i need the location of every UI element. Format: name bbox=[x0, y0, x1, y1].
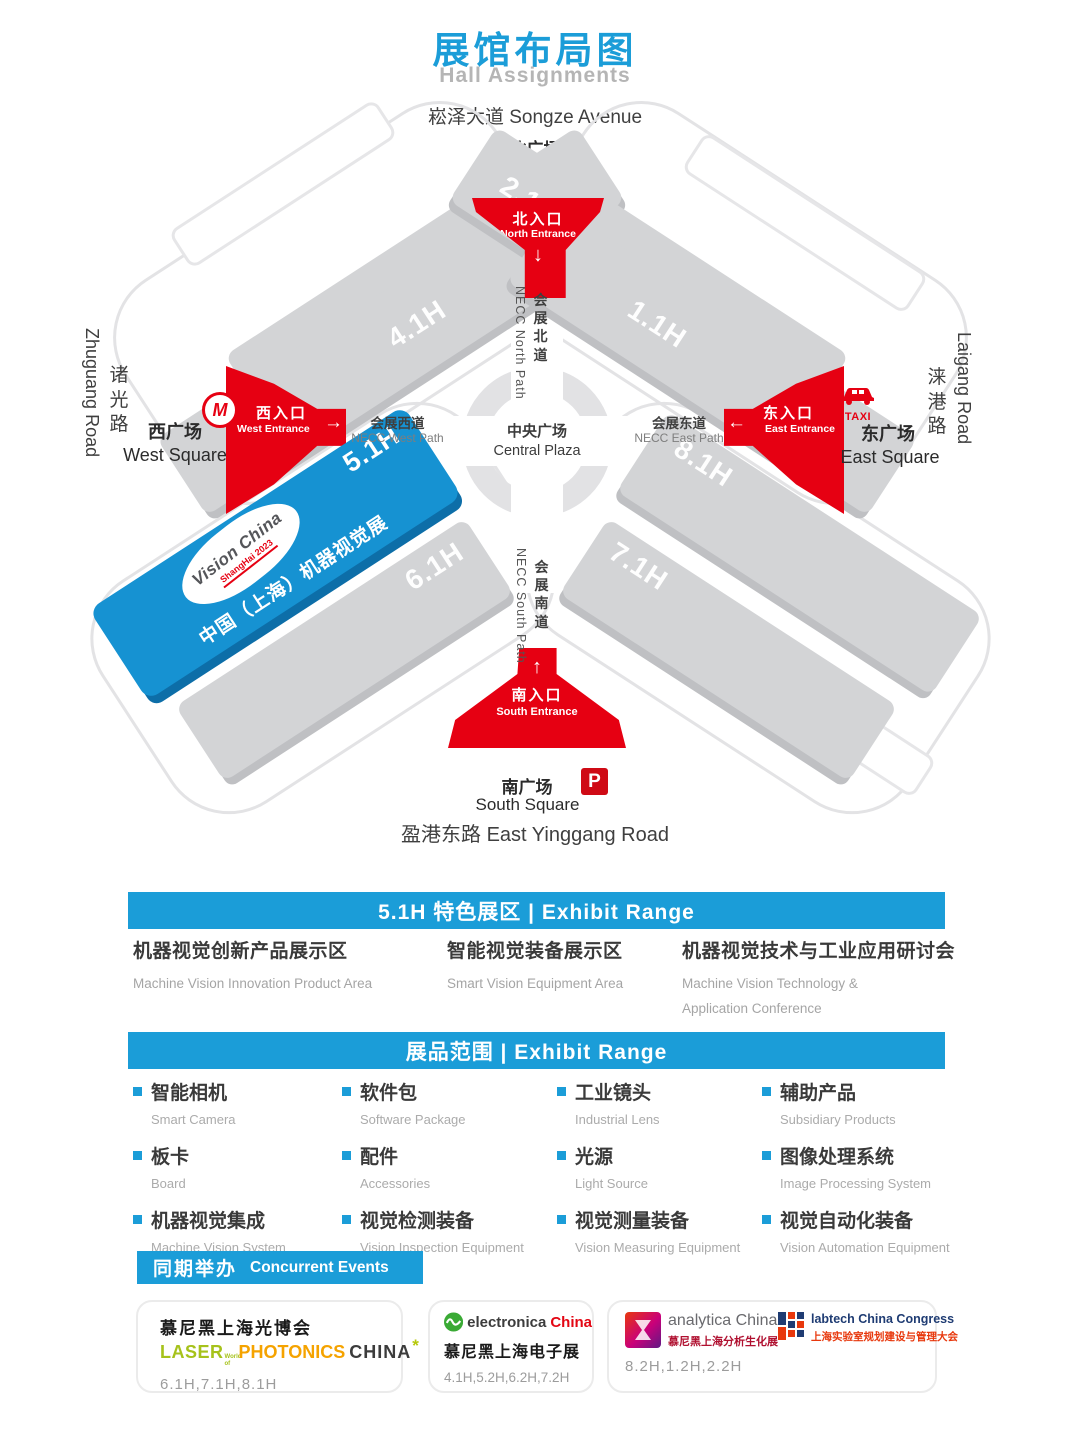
labtech-logo-block: labtech China Congress 上海实验室规划建设与管理大会 bbox=[778, 1312, 958, 1344]
necc-south-path-label-en: NECC South Path bbox=[514, 548, 528, 664]
concurrent-header-en: Concurrent Events bbox=[250, 1259, 389, 1277]
event-title-cn: 慕尼黑上海电子展 bbox=[444, 1338, 592, 1362]
featured-zone-header: 5.1H 特色展区 | Exhibit Range bbox=[128, 892, 945, 929]
event-card-laser-photonics: 慕尼黑上海光博会 LASER World of PHOTONICS CHINA … bbox=[136, 1300, 403, 1393]
bullet-icon bbox=[557, 1087, 566, 1096]
featured-item-cn: 智能视觉装备展示区 bbox=[447, 936, 672, 963]
concurrent-header-cn: 同期举办 bbox=[153, 1254, 237, 1281]
analytica-logo-block: analytica China 慕尼黑上海分析生化展 bbox=[625, 1312, 778, 1349]
necc-east-path-label-cn: 会展东道 bbox=[620, 412, 738, 432]
exhibit-item: 视觉自动化装备Vision Automation Equipment bbox=[762, 1206, 950, 1255]
exhibit-item: 机器视觉集成Machine Vision System bbox=[133, 1206, 342, 1255]
sparkle-icon: * bbox=[412, 1336, 419, 1356]
featured-item-en: Machine Vision Technology & Application … bbox=[682, 972, 882, 1022]
event-halls: 8.2H,1.2H,2.2H bbox=[625, 1358, 923, 1375]
hall-assignments-page: 展馆布局图 Hall Assignments 崧泽大道 Songze Avenu… bbox=[0, 0, 1070, 1436]
electronica-logo-icon bbox=[444, 1312, 463, 1332]
central-plaza-label-cn: 中央广场 bbox=[462, 420, 612, 441]
exhibit-range-header: 展品范围 | Exhibit Range bbox=[128, 1032, 945, 1069]
featured-zone-item: 机器视觉技术与工业应用研讨会 Machine Vision Technology… bbox=[682, 936, 882, 1022]
featured-item-cn: 机器视觉技术与工业应用研讨会 bbox=[682, 936, 882, 963]
east-square-label-en: East Square bbox=[815, 447, 965, 468]
exhibit-item: 光源Light Source bbox=[557, 1142, 762, 1191]
necc-north-path-label-cn: 会展北道 bbox=[532, 291, 549, 364]
road-label-songze-avenue: 崧泽大道 Songze Avenue bbox=[0, 102, 1070, 129]
bullet-icon bbox=[762, 1087, 771, 1096]
bullet-icon bbox=[342, 1215, 351, 1224]
necc-north-path-label-en: NECC North Path bbox=[513, 286, 527, 400]
bullet-icon bbox=[762, 1215, 771, 1224]
necc-west-path-label-cn: 会展西道 bbox=[340, 412, 455, 432]
exhibit-item: 板卡Board bbox=[133, 1142, 342, 1191]
road-label-zhuguang-cn: 诸光路 bbox=[108, 364, 130, 438]
electronica-logo: electronica China bbox=[444, 1312, 592, 1332]
concurrent-events-header: 同期举办 Concurrent Events bbox=[137, 1251, 423, 1284]
taxi-icon: TAXI bbox=[836, 385, 880, 423]
exhibit-item: 视觉检测装备Vision Inspection Equipment bbox=[342, 1206, 557, 1255]
exhibit-item: 配件Accessories bbox=[342, 1142, 557, 1191]
west-square-label-en: West Square bbox=[100, 445, 250, 466]
east-entrance-label-cn: 东入口 bbox=[763, 402, 814, 423]
road-label-laigang-cn: 涞港路 bbox=[926, 366, 948, 440]
exhibit-range-grid: 智能相机Smart Camera 软件包Software Package 工业镜… bbox=[133, 1078, 945, 1255]
featured-item-en: Smart Vision Equipment Area bbox=[447, 972, 672, 997]
east-entrance-label-en: East Entrance bbox=[765, 423, 835, 435]
necc-west-path-label-en: NECC West Path bbox=[340, 431, 455, 445]
exhibit-item: 图像处理系统Image Processing System bbox=[762, 1142, 950, 1191]
laser-photonics-logo: LASER World of PHOTONICS CHINA * bbox=[160, 1342, 401, 1367]
road-label-laigang-en: Laigang Road bbox=[953, 332, 974, 444]
event-title-cn: 慕尼黑上海光博会 bbox=[160, 1314, 401, 1339]
west-entrance-label-en: West Entrance bbox=[237, 423, 310, 435]
west-entrance-label-cn: 西入口 bbox=[256, 402, 307, 423]
exhibit-item: 辅助产品Subsidiary Products bbox=[762, 1078, 950, 1127]
exhibit-item: 软件包Software Package bbox=[342, 1078, 557, 1127]
west-square-label-cn: 西广场 bbox=[115, 418, 235, 444]
hall-label: 4.1H bbox=[382, 294, 452, 355]
event-halls: 4.1H,5.2H,6.2H,7.2H bbox=[444, 1370, 592, 1385]
exhibit-item: 视觉测量装备Vision Measuring Equipment bbox=[557, 1206, 762, 1255]
bullet-icon bbox=[133, 1151, 142, 1160]
road-label-east-yinggang: 盈港东路 East Yinggang Road bbox=[0, 818, 1070, 847]
featured-zone-item: 智能视觉装备展示区 Smart Vision Equipment Area bbox=[447, 936, 672, 997]
taxi-car-icon bbox=[841, 385, 875, 405]
south-entrance-label-cn: 南入口 bbox=[448, 684, 626, 705]
page-subtitle: Hall Assignments bbox=[0, 64, 1070, 88]
exhibit-item: 工业镜头Industrial Lens bbox=[557, 1078, 762, 1127]
featured-zone-item: 机器视觉创新产品展示区 Machine Vision Innovation Pr… bbox=[133, 936, 433, 997]
bullet-icon bbox=[133, 1087, 142, 1096]
bullet-icon bbox=[342, 1151, 351, 1160]
analytica-logo-icon bbox=[625, 1312, 661, 1348]
south-square-label-en: South Square bbox=[460, 795, 595, 815]
bullet-icon bbox=[133, 1215, 142, 1224]
event-card-analytica-labtech: analytica China 慕尼黑上海分析生化展 labtech China… bbox=[607, 1300, 937, 1393]
bullet-icon bbox=[557, 1215, 566, 1224]
labtech-logo-icon bbox=[778, 1312, 804, 1340]
featured-item-cn: 机器视觉创新产品展示区 bbox=[133, 936, 433, 963]
featured-item-en: Machine Vision Innovation Product Area bbox=[133, 972, 433, 997]
bullet-icon bbox=[342, 1087, 351, 1096]
bullet-icon bbox=[557, 1151, 566, 1160]
hall-label: 1.1H bbox=[622, 294, 692, 355]
bullet-icon bbox=[762, 1151, 771, 1160]
necc-east-path-label-en: NECC East Path bbox=[617, 431, 741, 445]
event-halls: 6.1H,7.1H,8.1H bbox=[160, 1376, 401, 1393]
road-label-zhuguang-en: Zhuguang Road bbox=[81, 328, 102, 457]
necc-south-path-label-cn: 会展南道 bbox=[533, 558, 550, 631]
central-plaza-label-en: Central Plaza bbox=[462, 443, 612, 459]
south-entrance-label-en: South Entrance bbox=[448, 706, 626, 718]
event-card-electronica: electronica China 慕尼黑上海电子展 4.1H,5.2H,6.2… bbox=[428, 1300, 594, 1393]
exhibit-item: 智能相机Smart Camera bbox=[133, 1078, 342, 1127]
parking-icon: P bbox=[581, 768, 608, 795]
